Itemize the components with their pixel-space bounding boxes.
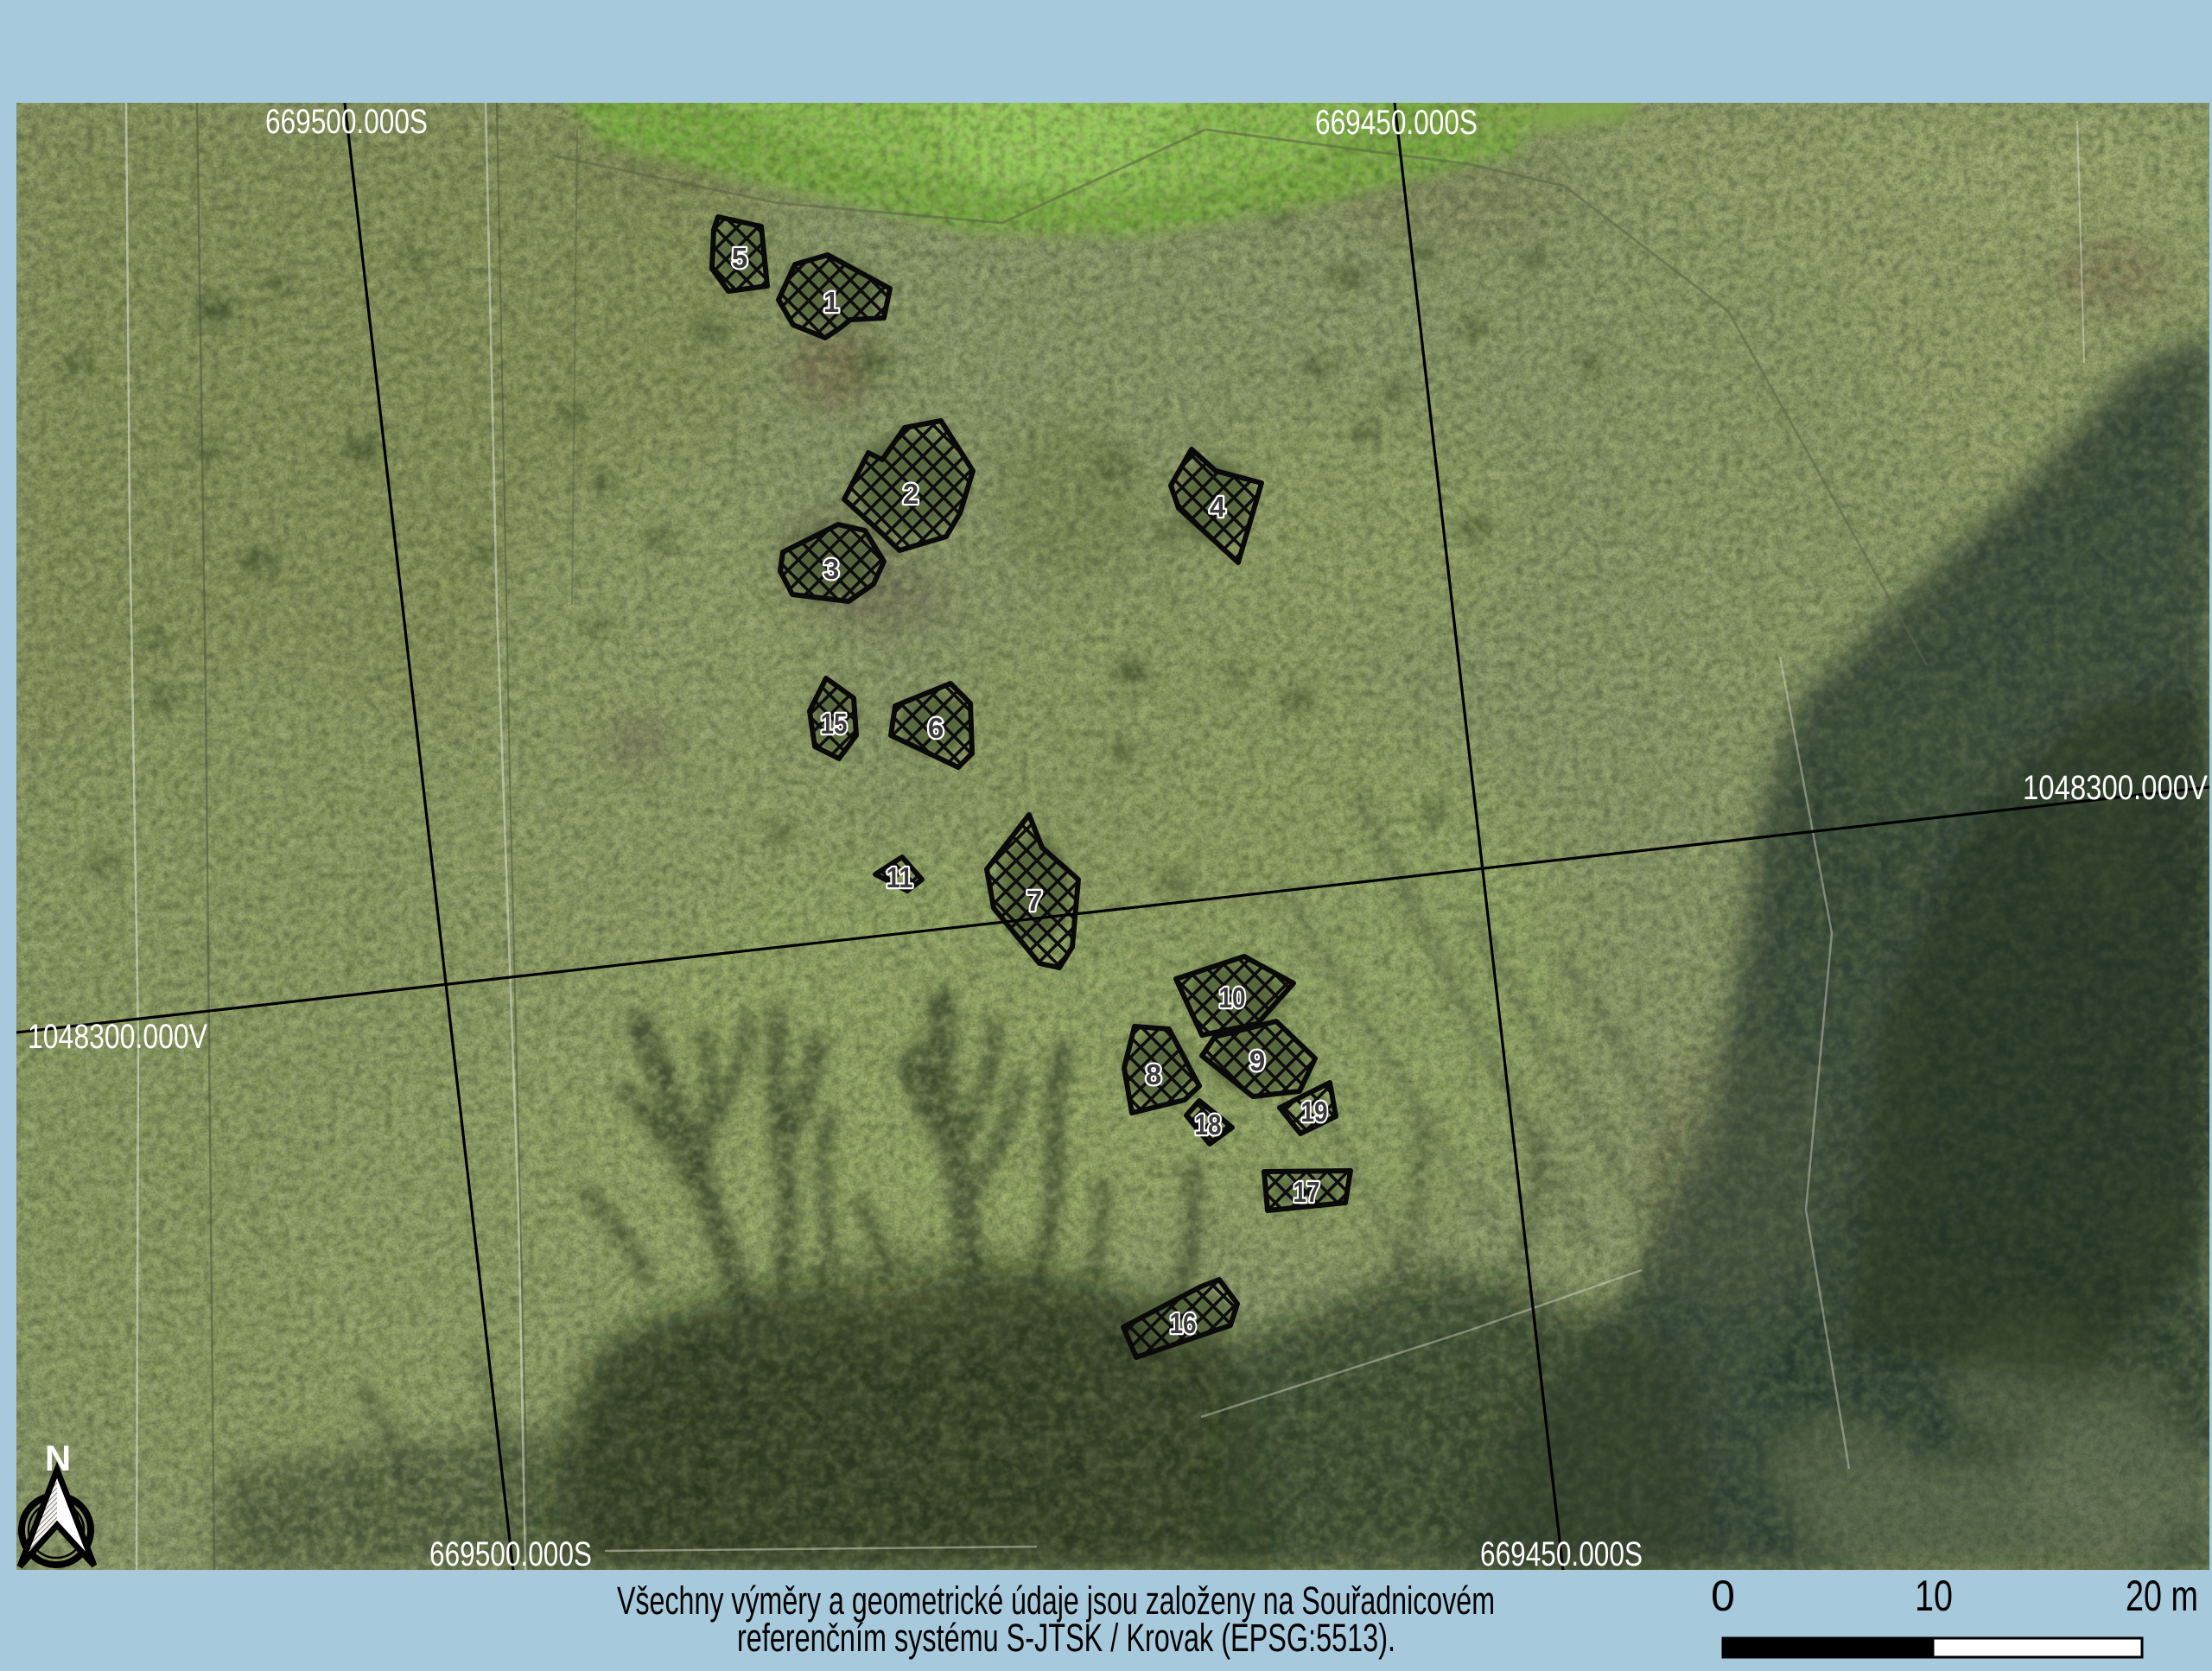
svg-text:669500.000S: 669500.000S [429, 1535, 592, 1573]
svg-text:18: 18 [1195, 1109, 1222, 1140]
svg-text:5: 5 [732, 242, 747, 274]
svg-text:0: 0 [1711, 1572, 1735, 1620]
svg-text:8: 8 [1146, 1058, 1161, 1090]
svg-text:669500.000S: 669500.000S [265, 103, 428, 141]
svg-text:4: 4 [1210, 491, 1226, 523]
svg-text:10: 10 [1219, 982, 1246, 1013]
svg-text:7: 7 [1027, 885, 1042, 917]
svg-text:15: 15 [821, 708, 848, 740]
svg-text:3: 3 [823, 553, 839, 585]
svg-text:10: 10 [1915, 1572, 1953, 1620]
svg-text:6: 6 [928, 712, 944, 744]
svg-text:11: 11 [887, 861, 913, 893]
svg-text:2: 2 [903, 478, 918, 510]
svg-text:1048300.000V: 1048300.000V [28, 1018, 207, 1056]
svg-text:20 m: 20 m [2126, 1572, 2198, 1620]
svg-text:1: 1 [823, 286, 839, 318]
svg-text:16: 16 [1170, 1307, 1197, 1339]
svg-text:9: 9 [1249, 1045, 1265, 1077]
svg-text:669450.000S: 669450.000S [1480, 1535, 1643, 1573]
svg-text:17: 17 [1294, 1176, 1320, 1208]
svg-text:19: 19 [1301, 1096, 1328, 1128]
svg-text:referenčním systému S-JTSK / K: referenčním systému S-JTSK / Krovak (EPS… [737, 1616, 1395, 1660]
svg-text:1048300.000V: 1048300.000V [2023, 769, 2208, 807]
svg-text:669450.000S: 669450.000S [1315, 104, 1478, 142]
